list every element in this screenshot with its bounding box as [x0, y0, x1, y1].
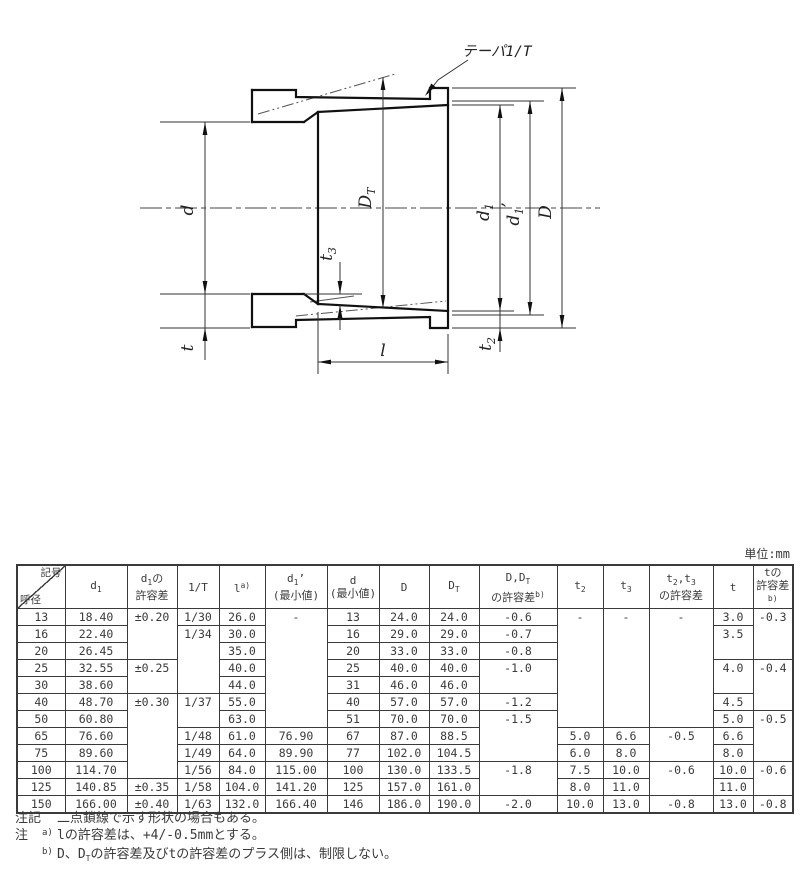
table-cell: 75 [17, 745, 65, 762]
text-part: a) [240, 581, 250, 590]
text-part: 許容差 [136, 589, 169, 602]
extension-lines [160, 88, 576, 374]
table-cell: 88.5 [429, 728, 479, 745]
table-cell: 11.0 [603, 779, 649, 796]
table-cell: -1.5 [479, 711, 557, 762]
header-line: la) [220, 579, 265, 595]
table-row: 1318.40±0.201/3026.0-1324.024.0-0.6---3.… [17, 609, 793, 626]
table-cell: 84.0 [219, 762, 265, 779]
text-part: t [730, 581, 737, 594]
note-line: b)D、DTの許容差及びtの許容差のプラス側は、制限しない。 [15, 846, 397, 867]
unit-label: 単位:mm [16, 545, 790, 562]
note-marker: a) [42, 825, 57, 842]
table-cell: 29.0 [429, 626, 479, 643]
table-cell: - [265, 609, 327, 728]
table-cell: 50 [17, 711, 65, 728]
dimension-table: 記号呼径d1d1の許容差1/Tla)d1’(最小値)d(最小値)DDTD,DTの… [16, 564, 794, 814]
technical-drawing: テーパ1/T d DT d1 d1’ D t3 t t2 l [0, 0, 800, 540]
table-cell: 4.5 [713, 694, 753, 711]
table-cell: -0.6 [649, 762, 713, 796]
text-part: lの許容差は、+4/-0.5mmとする。 [57, 828, 265, 843]
table-cell: ±0.25 [127, 660, 177, 694]
text-part: 3 [691, 578, 696, 587]
table-cell: 114.70 [65, 762, 127, 779]
note-label: 注記 [15, 810, 42, 827]
table-cell: 46.0 [429, 677, 479, 694]
table-cell: -0.8 [649, 796, 713, 814]
table-cell: -0.8 [479, 643, 557, 660]
table-cell: 6.6 [713, 728, 753, 745]
table-cell: 16 [17, 626, 65, 643]
table-cell: 190.0 [429, 796, 479, 814]
table-cell: 33.0 [429, 643, 479, 660]
col-header-corner: 記号呼径 [17, 565, 65, 609]
table-cell: - [557, 609, 603, 728]
table-cell: 65 [17, 728, 65, 745]
table-cell: 100 [17, 762, 65, 779]
table-cell: 70.0 [379, 711, 429, 728]
table-cell: 5.0 [713, 711, 753, 728]
header-row: 記号呼径d1d1の許容差1/Tla)d1’(最小値)d(最小値)DDTD,DTの… [17, 565, 793, 609]
table-cell: 51 [327, 711, 379, 728]
table-cell: 10.0 [603, 762, 649, 779]
header-line: d [328, 574, 379, 587]
col-header: d1’(最小値) [265, 565, 327, 609]
table-cell: 40 [327, 694, 379, 711]
col-header: t3 [603, 565, 649, 609]
table-cell: 115.00 [265, 762, 327, 779]
col-header: d(最小値) [327, 565, 379, 609]
table-cell: 140.85 [65, 779, 127, 796]
table-cell: 57.0 [379, 694, 429, 711]
table-cell: 161.0 [429, 779, 479, 796]
header-line: DT [430, 579, 479, 596]
table-cell: -1.8 [479, 762, 557, 796]
table-cell: 24.0 [429, 609, 479, 626]
table-cell: 25 [17, 660, 65, 677]
header-line: (最小値) [266, 589, 327, 602]
table-cell: -0.4 [753, 660, 793, 711]
note-text: lの許容差は、+4/-0.5mmとする。 [57, 827, 265, 844]
header-line: t2 [558, 579, 603, 596]
table-cell: ±0.30 [127, 694, 177, 779]
table-cell: 32.55 [65, 660, 127, 677]
col-header: DT [429, 565, 479, 609]
text-part: の許容差及びtの許容差のプラス側は、制限しない。 [90, 847, 397, 862]
corner-label-bore: 呼径 [20, 594, 41, 607]
table-cell: -0.3 [753, 609, 793, 660]
col-header: d1の許容差 [127, 565, 177, 609]
table-cell: 6.0 [557, 745, 603, 762]
text-part: (最小値) [273, 589, 319, 602]
table-cell: 8.0 [603, 745, 649, 762]
table-cell: 40.0 [219, 660, 265, 677]
table-cell: 20 [327, 643, 379, 660]
dim-label-dt: DT [356, 186, 378, 210]
header-line: t3 [604, 579, 649, 596]
table-cell: 6.6 [603, 728, 649, 745]
table-cell: 24.0 [379, 609, 429, 626]
text-part: 3 [627, 585, 632, 594]
table-cell: 8.0 [713, 745, 753, 762]
table-cell: 25 [327, 660, 379, 677]
dim-label-d: d [178, 204, 198, 215]
dim-label-d1: d1 [474, 203, 496, 221]
table-cell: 87.0 [379, 728, 429, 745]
col-header: t2 [557, 565, 603, 609]
table-cell: 102.0 [379, 745, 429, 762]
table-cell: 44.0 [219, 677, 265, 694]
table-cell: 1/49 [177, 745, 219, 762]
table-cell: 64.0 [219, 745, 265, 762]
table-cell: 141.20 [265, 779, 327, 796]
text-part: d [287, 572, 294, 585]
header-line: d1 [66, 579, 127, 596]
text-part: 二点鎖線で示す形状の場合もある。 [57, 811, 265, 826]
table-cell: 3.5 [713, 626, 753, 660]
col-header: t [713, 565, 753, 609]
table-cell: 60.80 [65, 711, 127, 728]
text-part: d [90, 579, 97, 592]
table-cell: 10.0 [713, 762, 753, 779]
table-cell: 125 [327, 779, 379, 796]
table-cell: 48.70 [65, 694, 127, 711]
table-cell: ±0.35 [127, 779, 177, 796]
text-part: (最小値) [330, 587, 376, 600]
table-cell: 4.0 [713, 660, 753, 694]
header-line: tの [754, 566, 793, 579]
header-line: 許容差 [128, 589, 177, 602]
text-part: の [152, 572, 163, 585]
page: テーパ1/T d DT d1 d1’ D t3 t t2 l 単位:mm 記号呼… [0, 0, 800, 893]
table-cell: 67 [327, 728, 379, 745]
table-cell: 157.0 [379, 779, 429, 796]
table-cell: 7.5 [557, 762, 603, 779]
taper-label: テーパ1/T [462, 44, 533, 60]
table-cell: 38.60 [65, 677, 127, 694]
text-part: の許容差 [491, 591, 535, 604]
table-cell: 26.0 [219, 609, 265, 626]
table-cell: 89.90 [265, 745, 327, 762]
table-cell: 100 [327, 762, 379, 779]
table-cell: -0.8 [753, 796, 793, 814]
text-part: b) [768, 594, 778, 603]
col-header: t2,t3の許容差 [649, 565, 713, 609]
table-cell: 76.60 [65, 728, 127, 745]
table-body: 1318.40±0.201/3026.0-1324.024.0-0.6---3.… [17, 609, 793, 814]
table-cell: 10.0 [557, 796, 603, 814]
dim-label-t2: t2 [476, 337, 498, 351]
table-cell: - [649, 609, 713, 728]
table-cell: 125 [17, 779, 65, 796]
text-part: d [350, 574, 357, 587]
table-cell: -1.2 [479, 694, 557, 711]
table-cell: 8.0 [557, 779, 603, 796]
table-cell: -0.6 [753, 762, 793, 796]
note-text: 二点鎖線で示す形状の場合もある。 [57, 810, 265, 827]
text-part: の許容差 [659, 589, 703, 602]
dim-label-t3: t3 [317, 247, 339, 261]
header-line: の許容差b) [480, 588, 557, 604]
text-part: 2 [581, 585, 586, 594]
header-line: の許容差 [650, 589, 713, 602]
header-line: d1の [128, 572, 177, 589]
table-cell: 18.40 [65, 609, 127, 626]
table-cell: 1/34 [177, 626, 219, 694]
text-part: t [574, 579, 581, 592]
text-part: 1/T [188, 581, 208, 594]
header-line: t2,t3 [650, 572, 713, 589]
note-text: D、DTの許容差及びtの許容差のプラス側は、制限しない。 [57, 846, 397, 867]
table-cell: 30 [17, 677, 65, 694]
table-cell: 33.0 [379, 643, 429, 660]
table-cell: 55.0 [219, 694, 265, 711]
table-cell: 31 [327, 677, 379, 694]
table-cell: 76.90 [265, 728, 327, 745]
text-part: ’ [298, 572, 305, 585]
table-cell: 13.0 [603, 796, 649, 814]
table-cell: 5.0 [557, 728, 603, 745]
table-cell: 133.5 [429, 762, 479, 779]
table-cell: - [603, 609, 649, 728]
text-part: ,t [678, 572, 691, 585]
table-cell: 104.5 [429, 745, 479, 762]
table-cell: -0.5 [649, 728, 713, 762]
note-line: 注a)lの許容差は、+4/-0.5mmとする。 [15, 827, 397, 846]
header-line: 1/T [178, 581, 219, 594]
table-cell: 61.0 [219, 728, 265, 745]
table-cell: 89.60 [65, 745, 127, 762]
table-cell: -0.6 [479, 609, 557, 626]
col-header: 1/T [177, 565, 219, 609]
note-line: 注記二点鎖線で示す形状の場合もある。 [15, 810, 397, 827]
dim-label-D: D [536, 205, 556, 220]
table-cell: 40.0 [379, 660, 429, 677]
table-cell: 77 [327, 745, 379, 762]
dim-label-d1-prime: d1’ [499, 202, 526, 225]
table-cell: 1/30 [177, 609, 219, 626]
text-part: T [455, 585, 460, 594]
table-cell: 130.0 [379, 762, 429, 779]
header-line: D [380, 581, 429, 594]
text-part: t [666, 572, 673, 585]
text-part: b) [535, 590, 545, 599]
col-header: tの許容差b) [753, 565, 793, 609]
table-cell: 13 [327, 609, 379, 626]
table-cell: 57.0 [429, 694, 479, 711]
table-cell: 70.0 [429, 711, 479, 728]
table-cell: 1/37 [177, 694, 219, 728]
header-line: (最小値) [328, 587, 379, 600]
text-part: D,D [506, 571, 526, 584]
col-header: D [379, 565, 429, 609]
header-line: D,DT [480, 571, 557, 588]
table-cell: 26.45 [65, 643, 127, 660]
table-cell: 63.0 [219, 711, 265, 728]
text-part: D [448, 579, 455, 592]
table-cell: 11.0 [713, 779, 753, 796]
text-part: D、D [57, 847, 86, 862]
header-line: d1’ [266, 572, 327, 589]
text-part: D [401, 581, 408, 594]
table-cell: 104.0 [219, 779, 265, 796]
table-cell: -1.0 [479, 660, 557, 694]
dim-label-t: t [178, 344, 198, 351]
table-cell: 40.0 [429, 660, 479, 677]
text-part: T [526, 577, 531, 586]
text-part: tの [764, 566, 782, 579]
note-marker: b) [42, 844, 57, 861]
note-label: 注 [15, 827, 42, 844]
table-cell: ±0.20 [127, 609, 177, 660]
dim-label-l: l [380, 341, 385, 361]
text-part: t [620, 579, 627, 592]
table-cell: 16 [327, 626, 379, 643]
table-cell: 1/48 [177, 728, 219, 745]
col-header: d1 [65, 565, 127, 609]
text-part: 許容差 [756, 579, 789, 592]
table-cell: 46.0 [379, 677, 429, 694]
col-header: la) [219, 565, 265, 609]
header-line: 許容差b) [754, 579, 793, 608]
table-cell: 20 [17, 643, 65, 660]
table-cell: 29.0 [379, 626, 429, 643]
table-cell: -2.0 [479, 796, 557, 814]
table-cell: 35.0 [219, 643, 265, 660]
table-cell: 13.0 [713, 796, 753, 814]
table-cell: 40 [17, 694, 65, 711]
table-cell: 1/58 [177, 779, 219, 796]
table-cell: -0.5 [753, 711, 793, 762]
header-line: t [714, 581, 753, 594]
text-part: 1 [97, 585, 102, 594]
table-cell: 3.0 [713, 609, 753, 626]
table-cell: 22.40 [65, 626, 127, 643]
table-cell: 30.0 [219, 626, 265, 643]
notes: 注記二点鎖線で示す形状の場合もある。注a)lの許容差は、+4/-0.5mmとする… [15, 810, 397, 867]
col-header: D,DTの許容差b) [479, 565, 557, 609]
corner-label-symbol: 記号 [41, 567, 62, 580]
table-cell: -0.7 [479, 626, 557, 643]
table-cell: 1/56 [177, 762, 219, 779]
table-cell: 13 [17, 609, 65, 626]
